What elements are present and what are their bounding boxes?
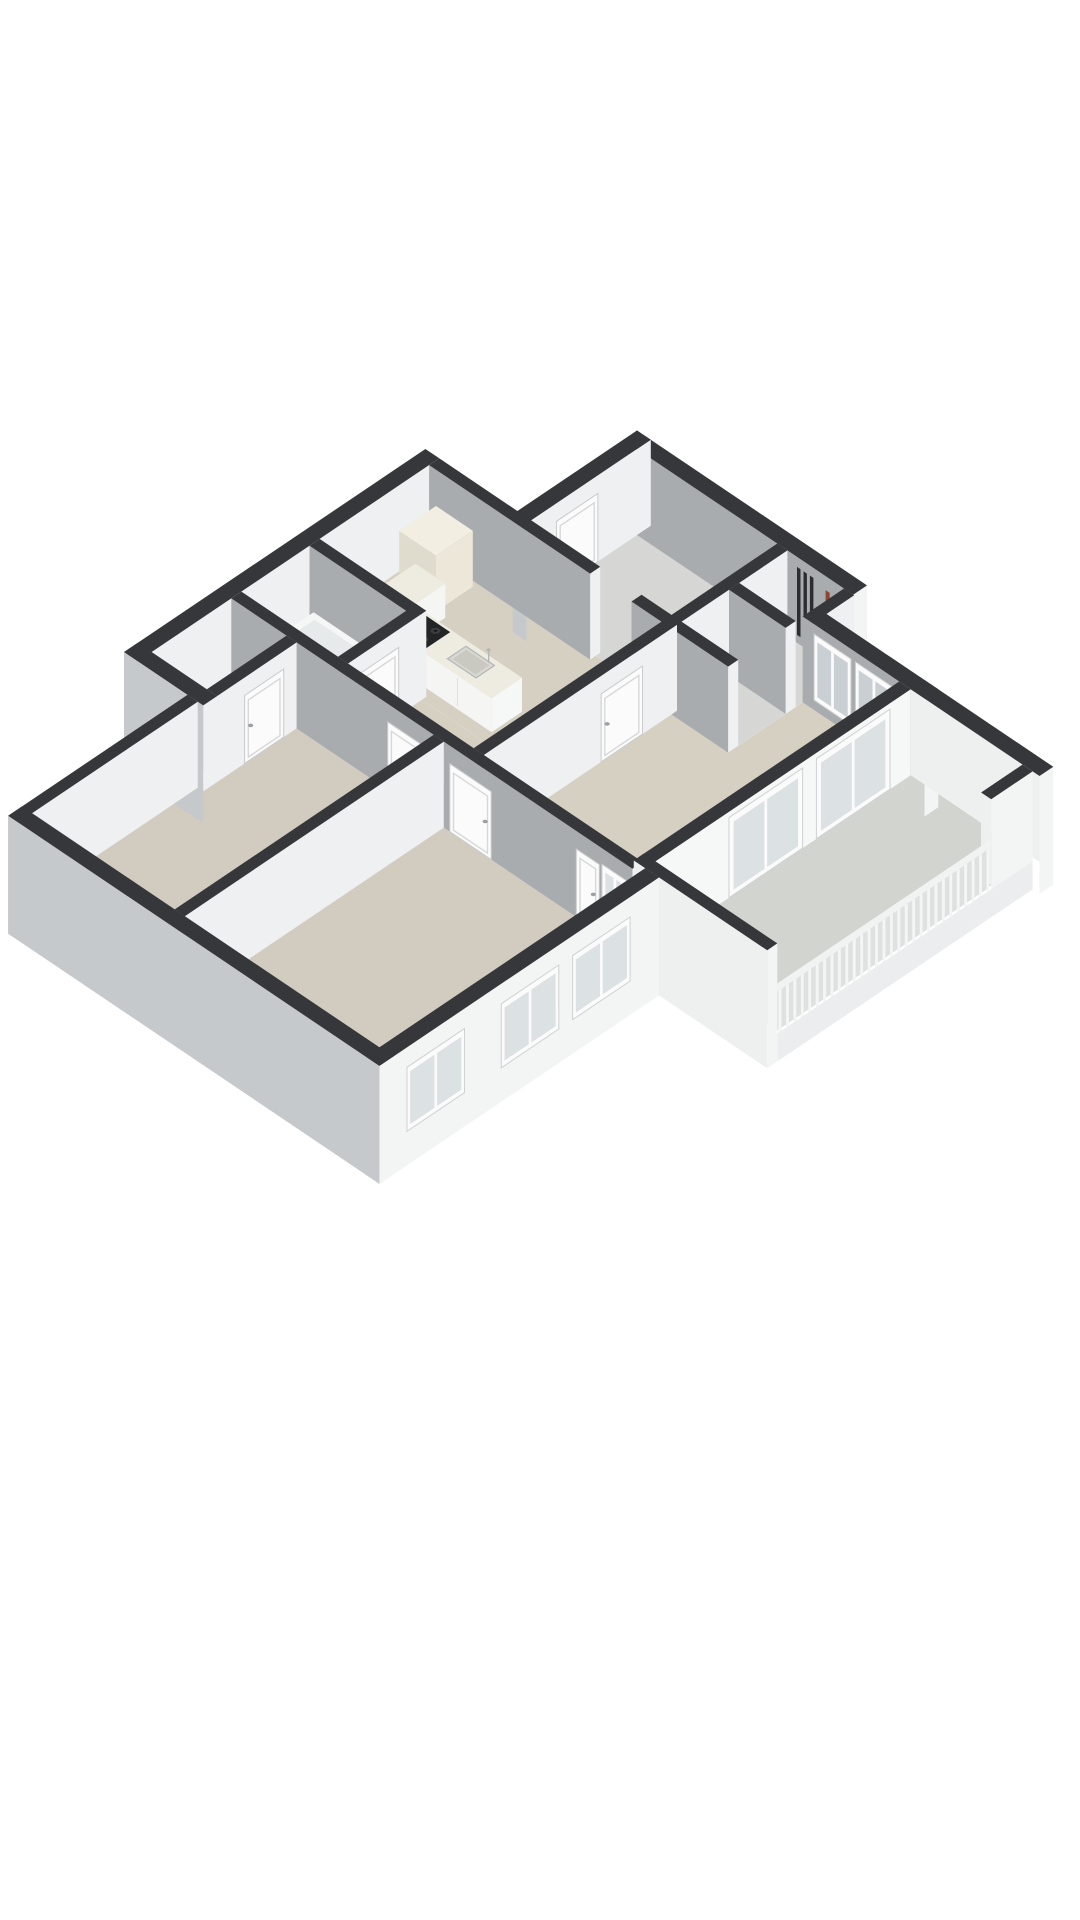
railing-slat [823,959,826,1003]
window-mullion [529,989,532,1044]
railing-slat [845,944,848,988]
sliding-door-mullion [764,799,767,869]
floor-plan-viewport [0,0,1080,1920]
railing-slat [905,904,908,948]
wall-face-se [590,567,600,660]
railing-slat [912,899,915,943]
railing-slat [838,949,841,993]
railing-slat [979,854,982,898]
radiator-bar-icon [797,567,801,637]
railing-slat [779,989,782,1033]
railing-slat [972,859,975,903]
railing-slat [793,979,796,1023]
faucet-stem-icon [488,649,489,663]
railing-slat [883,919,886,963]
railing-slat [987,849,990,893]
door-handle-icon [248,724,253,728]
railing-slat [875,924,878,968]
railing-slat [868,929,871,973]
railing-slat [957,869,960,913]
wall-face-se [767,943,777,1068]
sliding-door-mullion [852,740,855,810]
door-handle-icon [483,820,488,824]
railing-slat [831,954,834,998]
wall-face-se [728,660,738,753]
railing-slat [801,974,804,1018]
railing-slat [920,894,923,938]
wall-face-se [379,1057,393,1184]
window-mullion [831,652,834,709]
wall-face-se [1040,767,1054,894]
burner-center-icon [434,630,438,632]
wall-face-se [203,696,217,791]
railing-slat [860,934,863,978]
counter-seam [457,678,458,707]
railing-slat [786,984,789,1028]
window-mullion [434,1053,437,1108]
railing-slat [853,939,856,983]
floor-plan-3d [0,0,1080,1920]
railing-slat [964,864,967,908]
wall-face-se [786,621,796,714]
railing-slat [808,969,811,1013]
door-handle-icon [591,893,596,897]
railing-slat [935,884,938,928]
window-mullion [600,941,603,996]
faucet-icon [486,648,490,651]
railing-slat [927,889,930,933]
railing-slat [949,874,952,918]
railing-slat [942,879,945,923]
railing-slat [816,964,819,1008]
railing-slat [890,914,893,958]
door-handle-icon [605,722,610,726]
railing-slat [897,909,900,953]
